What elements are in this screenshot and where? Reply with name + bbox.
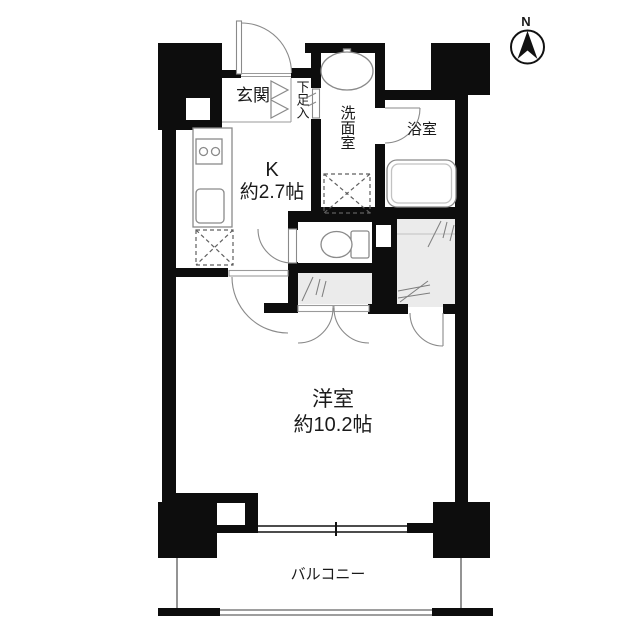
- wall: [217, 525, 245, 533]
- wall: [443, 304, 468, 314]
- storage-floor: [294, 271, 374, 304]
- wall: [407, 523, 433, 533]
- toilet-bowl-icon: [321, 232, 352, 258]
- floorplan-svg: N 玄関 下足入 洗面室 浴室 K 約2.7帖 洋室 約10.2帖 バルコニー: [0, 0, 640, 640]
- entrance-label: 玄関: [236, 86, 270, 105]
- washbasin-icon: [321, 52, 373, 90]
- toilet-tank-icon: [351, 231, 369, 258]
- kitchen-label: K: [265, 159, 279, 181]
- bathroom-label: 浴室: [407, 121, 437, 138]
- wall: [264, 303, 298, 313]
- wall: [291, 68, 312, 78]
- wall-left: [162, 130, 176, 502]
- kitchen-counter: [193, 128, 232, 227]
- balcony-wall-right: [432, 608, 493, 616]
- wall-right: [455, 95, 468, 502]
- wall: [311, 119, 321, 215]
- wall-kitchen: [162, 268, 228, 277]
- pillar-top-right: [431, 43, 490, 95]
- kitchen-door-leaf: [229, 271, 288, 277]
- wall: [311, 53, 321, 88]
- entrance-door-leaf: [237, 21, 242, 74]
- wall: [375, 144, 385, 215]
- pillar-bottom-right: [433, 502, 490, 558]
- floorplan-page: N 玄関 下足入 洗面室 浴室 K 約2.7帖 洋室 約10.2帖 バルコニー: [0, 0, 640, 640]
- wall: [158, 98, 186, 123]
- compass-north-label: N: [521, 14, 530, 29]
- western-room-label: 洋室: [312, 388, 354, 411]
- wall: [368, 304, 408, 314]
- wall-bottom-left: [176, 493, 258, 503]
- balcony-label: バルコニー: [291, 566, 366, 583]
- storage-door-leaf: [334, 306, 369, 312]
- kitchen-size-label: 約2.7帖: [240, 181, 304, 203]
- wall: [245, 503, 258, 533]
- storage-door-leaf: [298, 306, 333, 312]
- balcony-wall-left: [158, 608, 220, 616]
- pillar-bottom-left: [158, 502, 217, 558]
- wc-door-leaf: [289, 229, 297, 263]
- western-room-size-label: 約10.2帖: [294, 413, 373, 436]
- wall-wc-bottom: [288, 263, 382, 273]
- pillar-top-left: [158, 43, 222, 98]
- shoe-storage-label: 下足入: [295, 80, 310, 119]
- washroom-label: 洗面室: [339, 105, 356, 150]
- bathtub-icon: [387, 160, 456, 207]
- wall-notch: [376, 225, 391, 247]
- wall: [210, 98, 222, 123]
